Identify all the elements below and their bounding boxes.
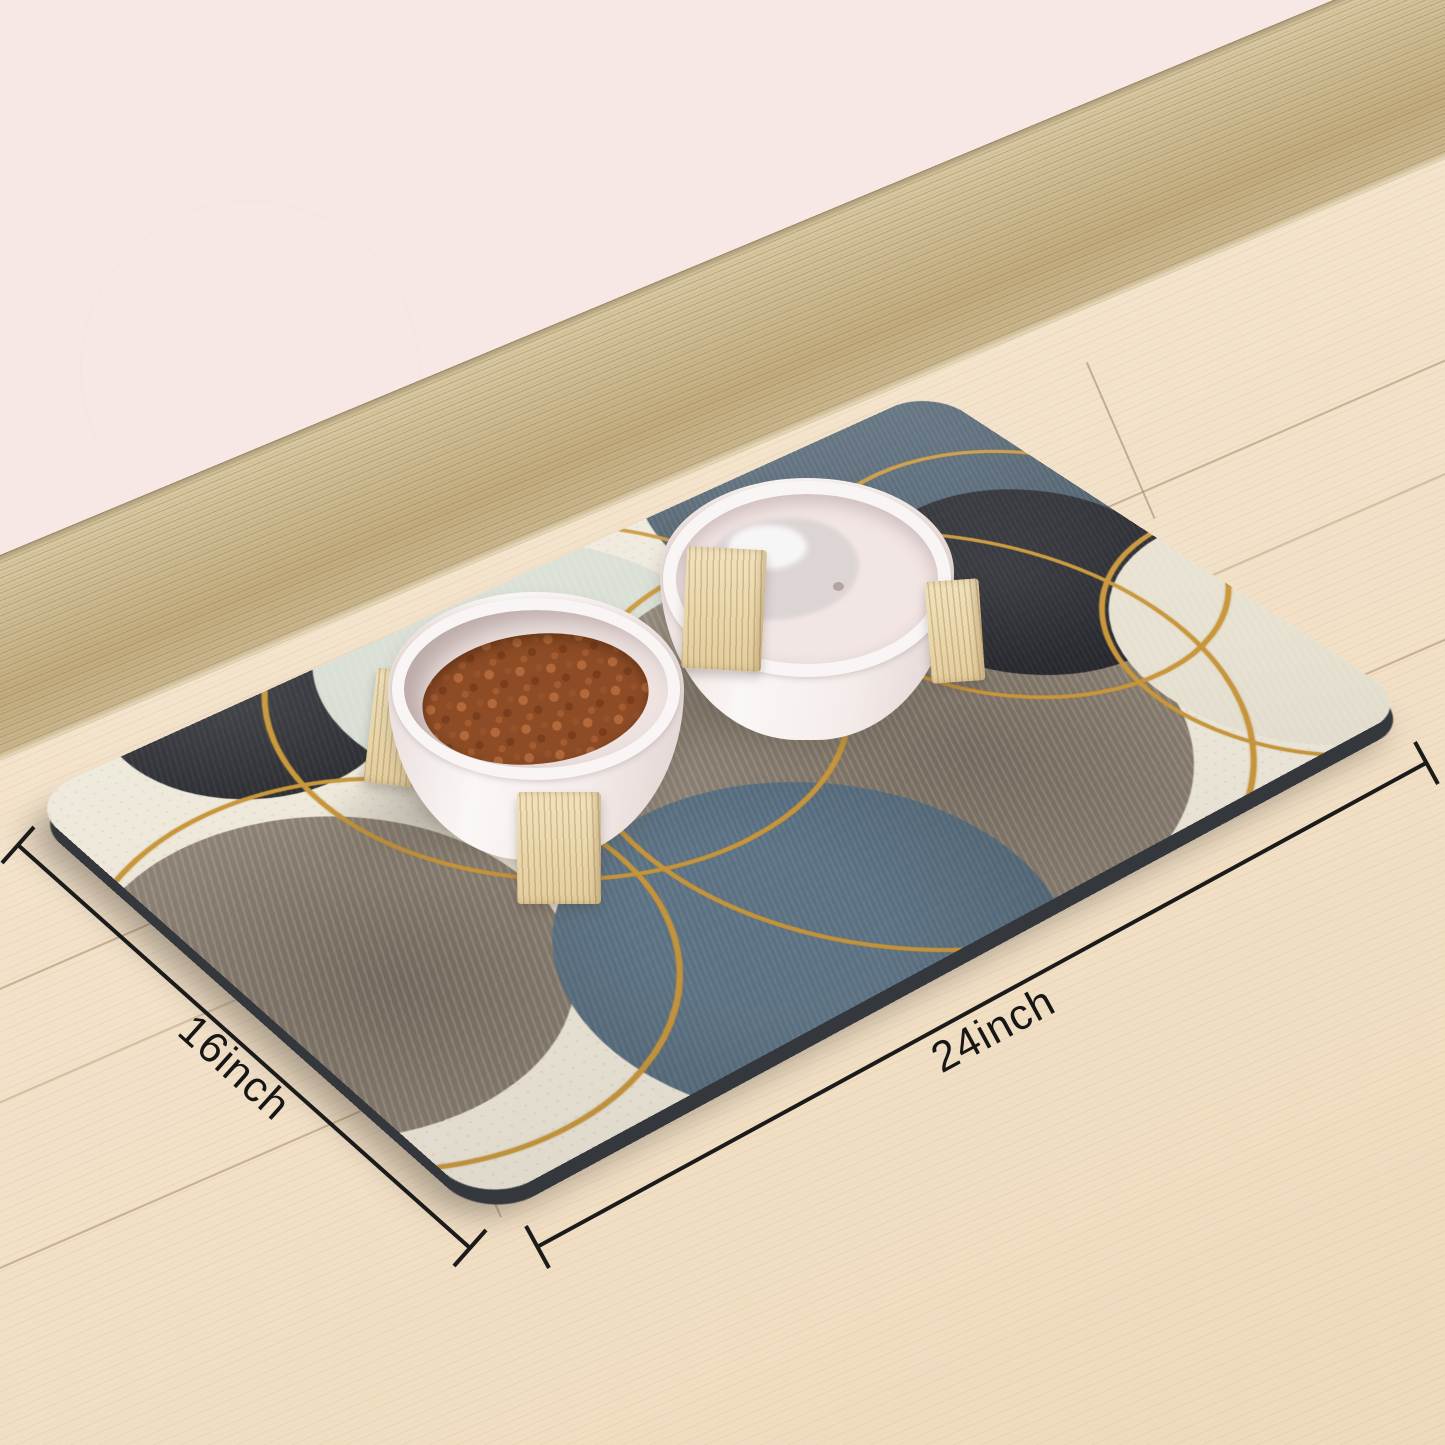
bowl-stand-center-block xyxy=(681,546,767,672)
scene: 16inch 24inch xyxy=(0,0,1445,1445)
food-bowl-opening xyxy=(392,598,680,780)
kibble-pile xyxy=(416,622,655,775)
floor-plank-seam xyxy=(1086,362,1156,519)
water-bowl-stand-right xyxy=(925,578,986,684)
food-bowl-stand-front-leg xyxy=(517,792,601,904)
